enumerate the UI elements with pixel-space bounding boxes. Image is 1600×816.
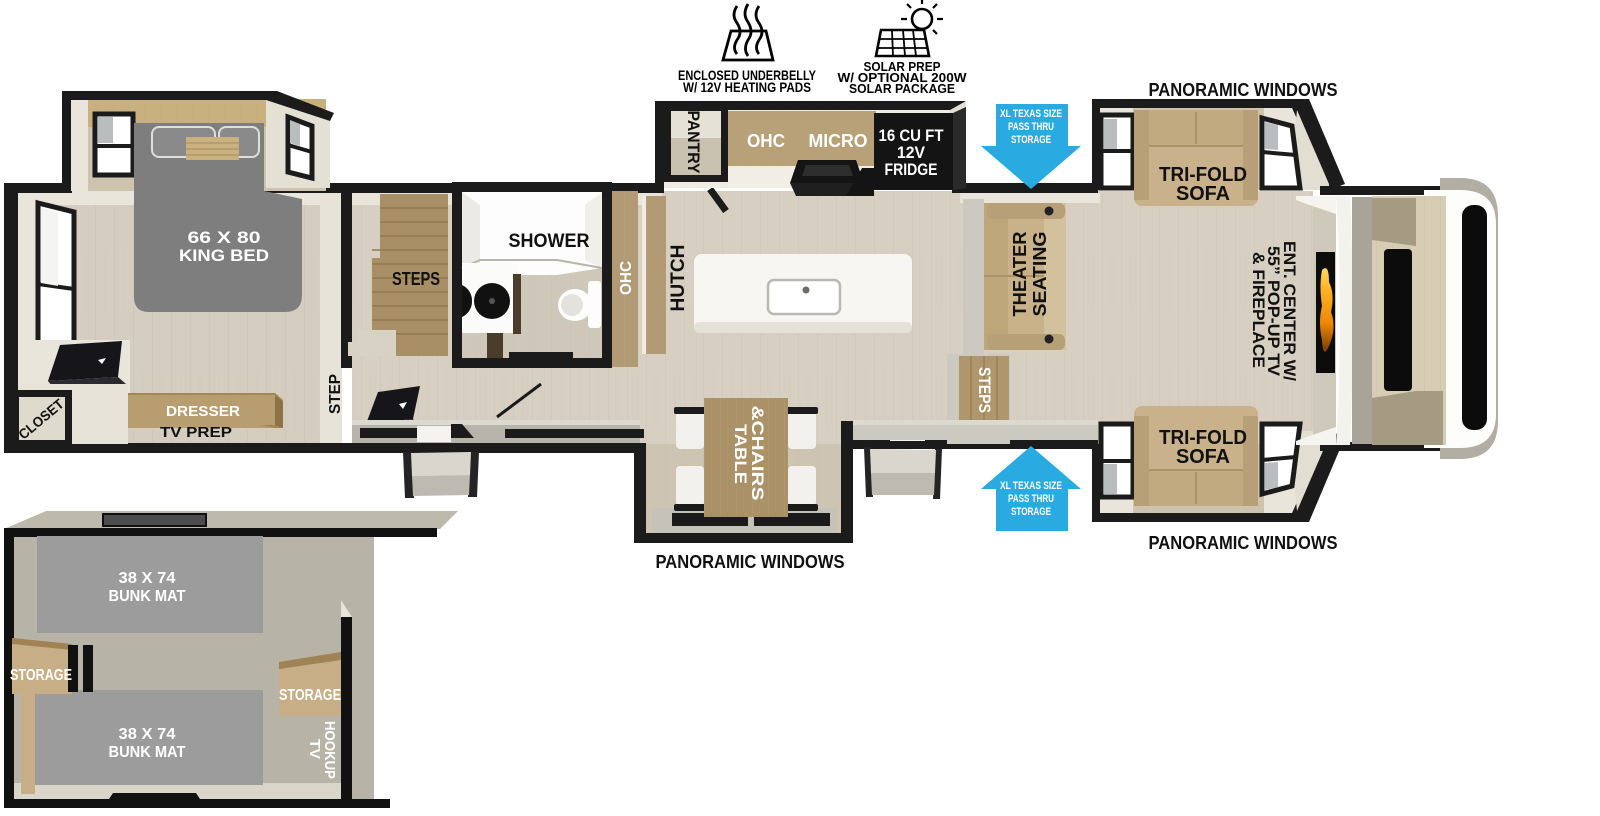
svg-text:THEATER: THEATER (1010, 232, 1030, 317)
svg-text:SOFA: SOFA (1176, 446, 1230, 468)
svg-text:TV: TV (306, 739, 323, 759)
svg-text:TABLE: TABLE (731, 424, 750, 484)
svg-text:STORAGE: STORAGE (279, 687, 341, 704)
svg-text:&CHAIRS: &CHAIRS (748, 406, 767, 501)
svg-text:STEPS: STEPS (392, 269, 440, 289)
svg-text:KING BED: KING BED (179, 247, 269, 265)
svg-text:SHOWER: SHOWER (509, 231, 590, 252)
svg-text:TV PREP: TV PREP (160, 424, 232, 441)
svg-text:PASS THRU: PASS THRU (1008, 121, 1054, 133)
svg-text:STORAGE: STORAGE (1011, 506, 1051, 518)
svg-text:XL TEXAS SIZE: XL TEXAS SIZE (1000, 480, 1062, 492)
svg-text:PANTRY: PANTRY (684, 111, 703, 175)
svg-text:FRIDGE: FRIDGE (885, 160, 938, 179)
svg-text:PASS THRU: PASS THRU (1008, 493, 1054, 505)
svg-text:STEP: STEP (327, 374, 344, 414)
svg-text:HOOKUP: HOOKUP (321, 721, 338, 779)
svg-text:PANORAMIC WINDOWS: PANORAMIC WINDOWS (1149, 80, 1338, 100)
svg-text:38 X 74: 38 X 74 (119, 570, 176, 587)
svg-text:66 X 80: 66 X 80 (188, 229, 261, 247)
svg-text:BUNK MAT: BUNK MAT (109, 588, 186, 605)
svg-text:SOLAR PACKAGE: SOLAR PACKAGE (849, 81, 955, 96)
svg-text:PANORAMIC WINDOWS: PANORAMIC WINDOWS (1149, 533, 1338, 553)
svg-text:DRESSER: DRESSER (166, 403, 240, 420)
svg-text:MICRO: MICRO (809, 131, 868, 151)
svg-text:STEPS: STEPS (975, 367, 993, 413)
svg-text:& FIREPLACE: & FIREPLACE (1249, 252, 1267, 368)
svg-text:XL TEXAS SIZE: XL TEXAS SIZE (1000, 108, 1062, 120)
svg-text:W/ 12V HEATING PADS: W/ 12V HEATING PADS (683, 79, 811, 95)
svg-text:SOFA: SOFA (1176, 183, 1230, 205)
svg-text:OHC: OHC (618, 261, 635, 295)
svg-text:STORAGE: STORAGE (10, 667, 72, 684)
svg-text:HUTCH: HUTCH (668, 245, 689, 312)
svg-text:BUNK MAT: BUNK MAT (109, 744, 186, 761)
svg-text:38 X 74: 38 X 74 (119, 726, 176, 743)
svg-text:SEATING: SEATING (1030, 232, 1050, 317)
svg-text:STORAGE: STORAGE (1011, 134, 1051, 146)
svg-text:OHC: OHC (747, 131, 785, 151)
svg-text:PANORAMIC WINDOWS: PANORAMIC WINDOWS (656, 552, 845, 572)
